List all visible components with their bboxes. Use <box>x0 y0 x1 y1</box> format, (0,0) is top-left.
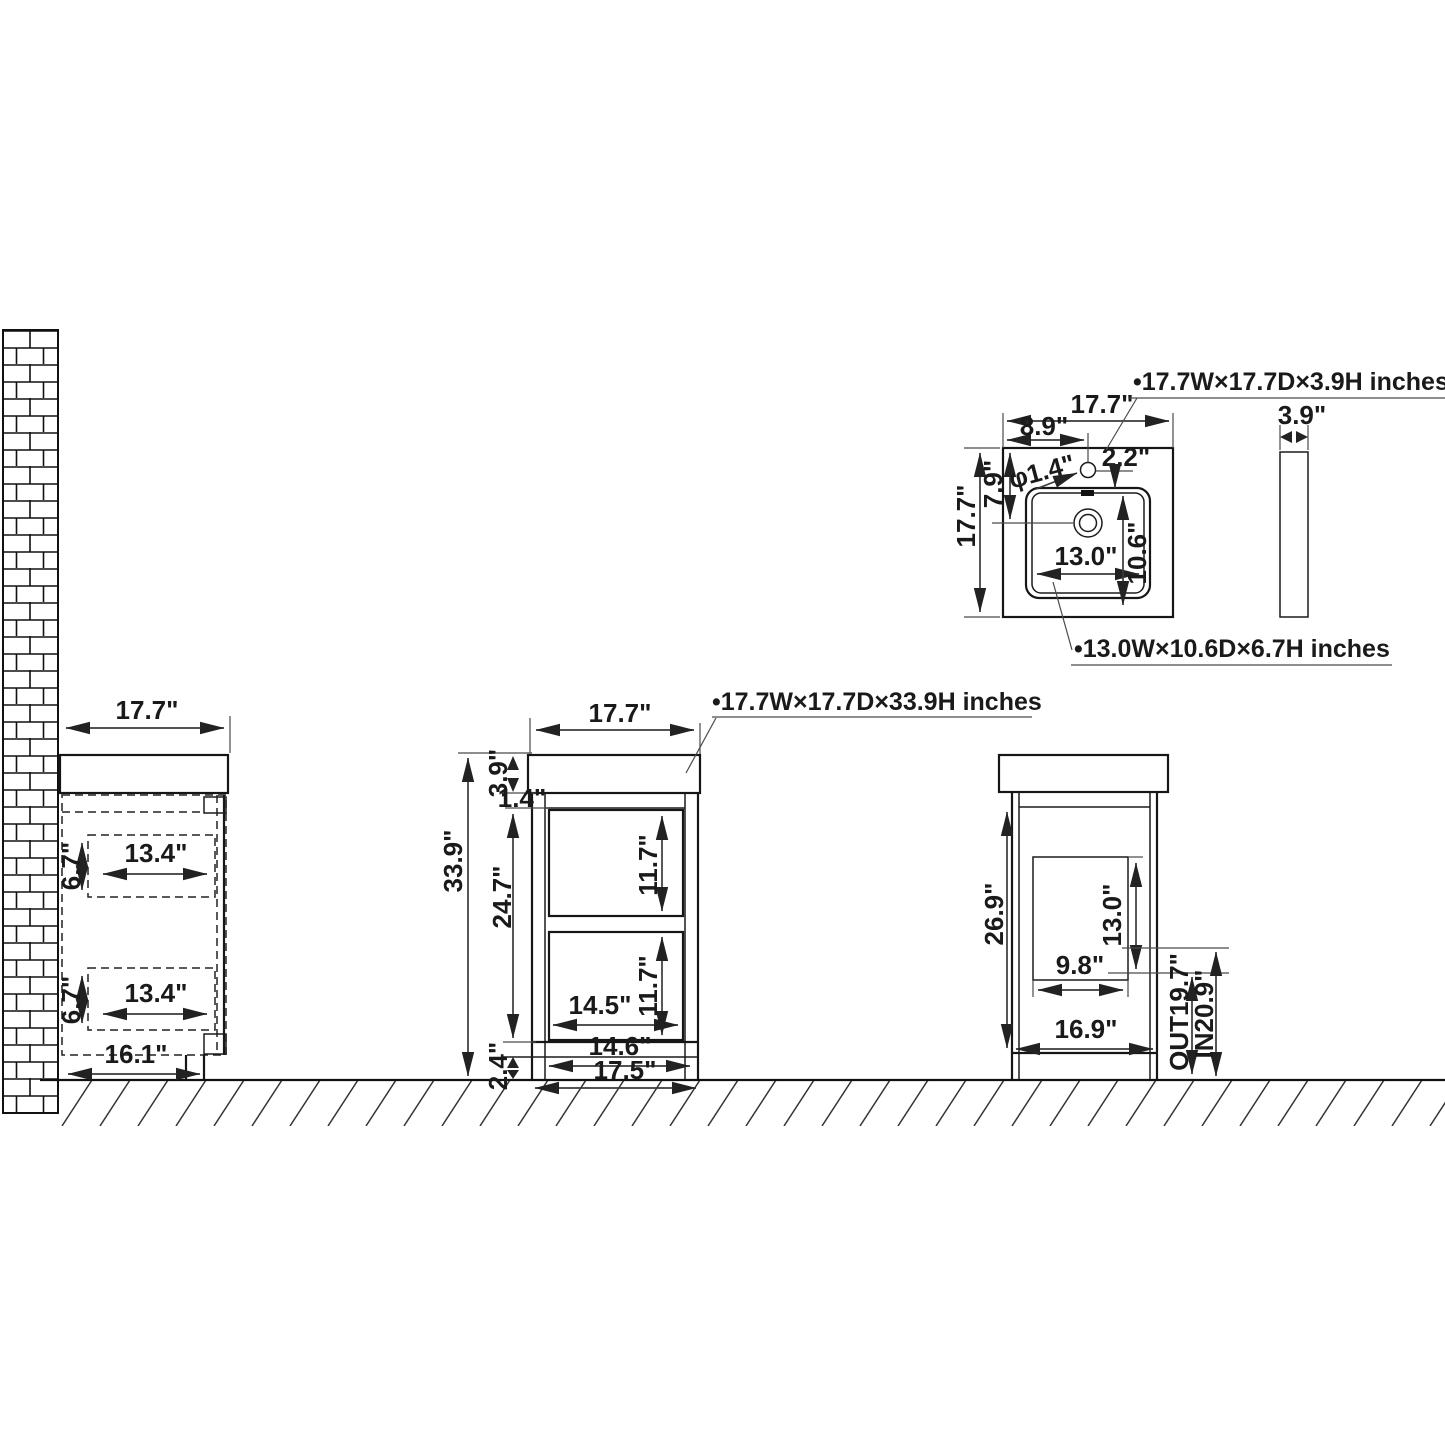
side-view: 17.7" 6.7" 13.4" 6.7" 13.4" 16.1" <box>56 695 230 1079</box>
faucet-gap-label: 2.2" <box>1102 442 1150 472</box>
faucet-hole <box>1081 463 1096 478</box>
body-height-label: 24.7" <box>487 866 517 929</box>
drain-outer <box>1074 509 1102 537</box>
front-width-label: 17.7" <box>589 698 652 728</box>
faucet-offset-label: 8.9" <box>1020 411 1068 441</box>
side-cabinet-body <box>62 795 226 1055</box>
sink-depth-label: 17.7" <box>951 485 981 548</box>
total-height-label: 33.9" <box>438 830 468 893</box>
water-in-label: IN20.9" <box>1189 970 1219 1059</box>
slab-thickness-label: 3.9" <box>1278 400 1326 430</box>
floor-hatch <box>58 1080 1445 1126</box>
drawer1-height-label: 6.7" <box>56 842 86 890</box>
drawer2-height-label: 6.7" <box>56 976 86 1024</box>
cutout-width-label: 9.8" <box>1056 950 1104 980</box>
side-depth-label: 17.7" <box>116 695 179 725</box>
sink-width-label: 17.7" <box>1071 389 1134 419</box>
front-view: 17.7" 33.9" 3.9" 1.4" 24.7" 2.4" 11.7" 1… <box>438 688 1042 1090</box>
drain-offset-label: 7.9" <box>978 460 1008 508</box>
drawer1-depth-label: 13.4" <box>125 838 188 868</box>
sink-spec-label: •17.7W×17.7D×3.9H inches <box>1133 368 1445 396</box>
floor <box>40 1080 1445 1126</box>
base-width-label: 17.5" <box>594 1055 657 1085</box>
back-countertop <box>999 755 1168 792</box>
side-countertop <box>60 755 228 793</box>
back-width-label: 16.9" <box>1055 1014 1118 1044</box>
front-countertop <box>528 755 700 793</box>
brick-wall <box>3 330 58 1113</box>
technical-drawing: 17.7" 6.7" 13.4" 6.7" 13.4" 16.1" 17.7" <box>0 0 1445 1445</box>
vanity-spec-label: •17.7W×17.7D×33.9H inches <box>712 688 1042 716</box>
overflow-notch <box>1081 490 1094 496</box>
drawer2-depth-label: 13.4" <box>125 978 188 1008</box>
basin-depth-label: 10.6" <box>1122 522 1152 585</box>
slab-side-view: 3.9" <box>1278 400 1326 617</box>
drain-inner <box>1080 515 1097 532</box>
drawer-width-label: 14.5" <box>569 990 632 1020</box>
back-view: 13.0" 9.8" 26.9" 16.9" OUT19.7" IN20.9" <box>979 755 1229 1079</box>
basin-width-label: 13.0" <box>1055 541 1118 571</box>
vanity-dimension-drawing: 17.7" 6.7" 13.4" 6.7" 13.4" 16.1" 17.7" <box>0 0 1445 1445</box>
front-drawer1-height-label: 11.7" <box>633 834 663 896</box>
sink-top-view: 17.7" 8.9" 17.7" 7.9" φ1.4" 2.2" 13.0" 1… <box>951 368 1445 665</box>
front-drawer2-height-label: 11.7" <box>633 955 663 1017</box>
basin-spec-label: •13.0W×10.6D×6.7H inches <box>1074 635 1390 663</box>
back-height-label: 26.9" <box>979 883 1009 946</box>
base-depth-label: 16.1" <box>105 1039 168 1069</box>
slab-outline <box>1280 452 1308 617</box>
cutout-height-label: 13.0" <box>1097 884 1127 947</box>
